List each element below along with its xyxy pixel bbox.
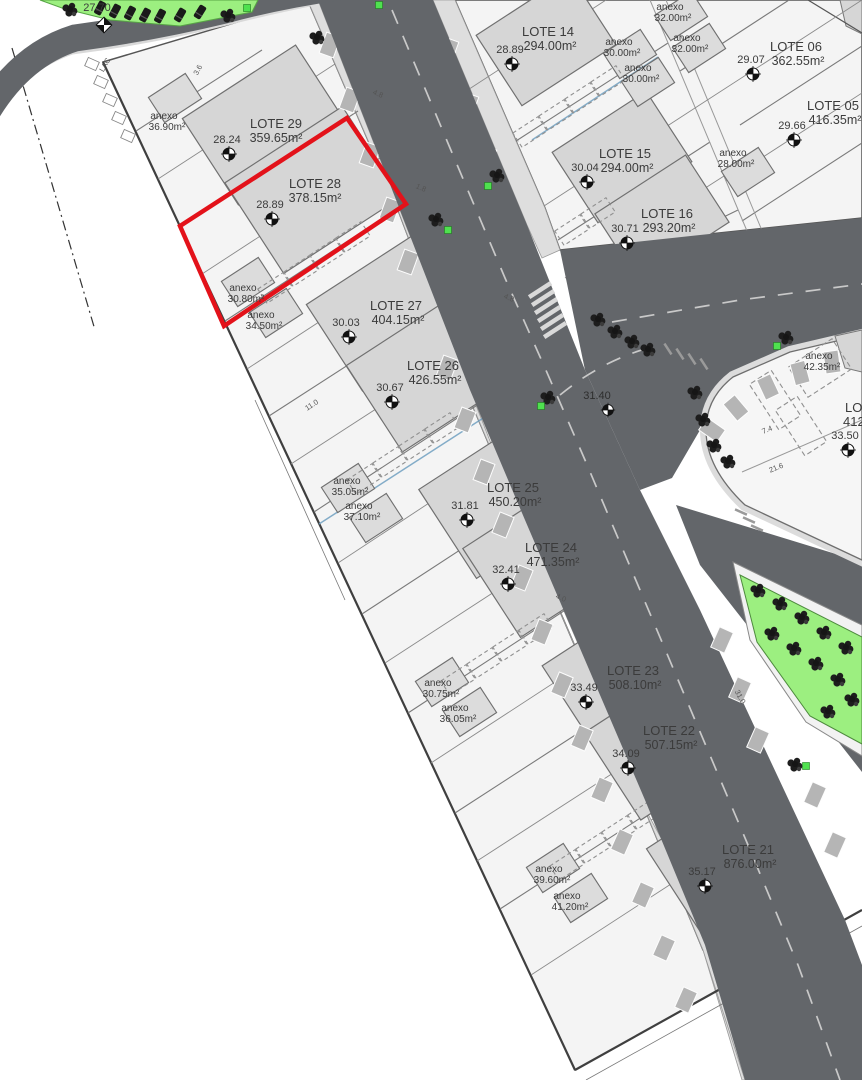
svg-text:LOTE 15: LOTE 15	[599, 146, 651, 161]
svg-text:LOTE 23: LOTE 23	[607, 663, 659, 678]
svg-text:anexo: anexo	[673, 33, 701, 44]
svg-text:LOTE 25: LOTE 25	[487, 480, 539, 495]
svg-text:426.55m²: 426.55m²	[409, 373, 462, 387]
svg-text:404.15m²: 404.15m²	[372, 313, 425, 327]
green-marker-icon	[445, 227, 452, 234]
svg-text:31.81: 31.81	[451, 500, 479, 512]
svg-text:anexo: anexo	[229, 283, 257, 294]
svg-text:39.60m²: 39.60m²	[534, 875, 571, 886]
svg-text:anexo: anexo	[150, 111, 178, 122]
svg-text:anexo: anexo	[553, 891, 581, 902]
svg-text:35.05m²: 35.05m²	[332, 487, 369, 498]
svg-text:28.89: 28.89	[256, 199, 284, 211]
svg-text:anexo: anexo	[535, 864, 563, 875]
svg-text:29.66: 29.66	[778, 120, 806, 132]
svg-text:42.35m²: 42.35m²	[804, 362, 841, 373]
svg-text:33.50: 33.50	[831, 430, 859, 442]
svg-text:LOTE 21: LOTE 21	[722, 842, 774, 857]
svg-text:34.09: 34.09	[612, 748, 640, 760]
svg-text:30.80m²: 30.80m²	[228, 294, 265, 305]
site-plan-drawing: LOTE 29359.65m² 28.24 LOTE 28378.15m² 28…	[0, 0, 862, 1080]
svg-text:30.71: 30.71	[611, 223, 639, 235]
svg-text:508.10m²: 508.10m²	[609, 678, 662, 692]
svg-text:29.07: 29.07	[737, 54, 765, 66]
svg-text:LOTE 05: LOTE 05	[807, 98, 859, 113]
svg-text:412: 412	[843, 414, 862, 429]
svg-text:anexo: anexo	[441, 703, 469, 714]
svg-text:30.75m²: 30.75m²	[423, 689, 460, 700]
svg-text:33.49: 33.49	[570, 682, 598, 694]
svg-text:31.40: 31.40	[583, 390, 611, 402]
svg-text:30.03: 30.03	[332, 317, 360, 329]
svg-text:28.00m²: 28.00m²	[718, 159, 755, 170]
svg-text:507.15m²: 507.15m²	[645, 738, 698, 752]
svg-text:LOTE 16: LOTE 16	[641, 206, 693, 221]
svg-text:362.55m²: 362.55m²	[772, 54, 825, 68]
svg-text:LOTE 26: LOTE 26	[407, 358, 459, 373]
svg-text:294.00m²: 294.00m²	[524, 39, 577, 53]
svg-text:876.00m²: 876.00m²	[724, 857, 777, 871]
svg-text:36.90m²: 36.90m²	[149, 122, 186, 133]
svg-text:28.24: 28.24	[213, 134, 241, 146]
svg-text:anexo: anexo	[333, 476, 361, 487]
svg-text:30.67: 30.67	[376, 382, 404, 394]
green-marker-icon	[485, 183, 492, 190]
svg-text:30.00m²: 30.00m²	[604, 48, 641, 59]
svg-text:anexo: anexo	[805, 351, 833, 362]
svg-text:30.04: 30.04	[571, 162, 599, 174]
svg-text:32.00m²: 32.00m²	[655, 13, 692, 24]
svg-text:LOTE 27: LOTE 27	[370, 298, 422, 313]
svg-text:LOTE: LOTE	[845, 400, 862, 415]
svg-text:36.05m²: 36.05m²	[440, 714, 477, 725]
svg-text:anexo: anexo	[345, 501, 373, 512]
svg-text:LOTE 28: LOTE 28	[289, 176, 341, 191]
green-marker-icon	[376, 2, 383, 9]
svg-text:359.65m²: 359.65m²	[250, 131, 303, 145]
site-plan-canvas: LOTE 29359.65m² 28.24 LOTE 28378.15m² 28…	[0, 0, 862, 1080]
svg-text:28.89: 28.89	[496, 44, 524, 56]
svg-text:LOTE 22: LOTE 22	[643, 723, 695, 738]
svg-text:anexo: anexo	[719, 148, 747, 159]
lot-label-partial: LOTE 412	[843, 400, 862, 429]
green-marker-icon	[538, 403, 545, 410]
svg-text:32.41: 32.41	[492, 564, 520, 576]
svg-text:LOTE 29: LOTE 29	[250, 116, 302, 131]
svg-text:27.70: 27.70	[83, 2, 111, 14]
svg-text:416.35m²: 416.35m²	[809, 113, 862, 127]
svg-text:35.17: 35.17	[688, 866, 716, 878]
svg-text:LOTE 14: LOTE 14	[522, 24, 574, 39]
svg-text:450.20m²: 450.20m²	[489, 495, 542, 509]
svg-text:294.00m²: 294.00m²	[601, 161, 654, 175]
svg-text:41.20m²: 41.20m²	[552, 902, 589, 913]
svg-text:anexo: anexo	[656, 2, 684, 13]
svg-text:32.00m²: 32.00m²	[672, 44, 709, 55]
svg-text:37.10m²: 37.10m²	[344, 512, 381, 523]
svg-text:34.50m²: 34.50m²	[246, 321, 283, 332]
svg-text:293.20m²: 293.20m²	[643, 221, 696, 235]
svg-text:30.00m²: 30.00m²	[623, 74, 660, 85]
svg-text:LOTE 24: LOTE 24	[525, 540, 577, 555]
green-marker-icon	[774, 343, 781, 350]
green-marker-icon	[244, 5, 251, 12]
svg-text:anexo: anexo	[247, 310, 275, 321]
svg-text:anexo: anexo	[424, 678, 452, 689]
svg-text:anexo: anexo	[605, 37, 633, 48]
svg-text:anexo: anexo	[624, 63, 652, 74]
svg-text:LOTE 06: LOTE 06	[770, 39, 822, 54]
svg-text:378.15m²: 378.15m²	[289, 191, 342, 205]
svg-text:471.35m²: 471.35m²	[527, 555, 580, 569]
green-marker-icon	[803, 763, 810, 770]
